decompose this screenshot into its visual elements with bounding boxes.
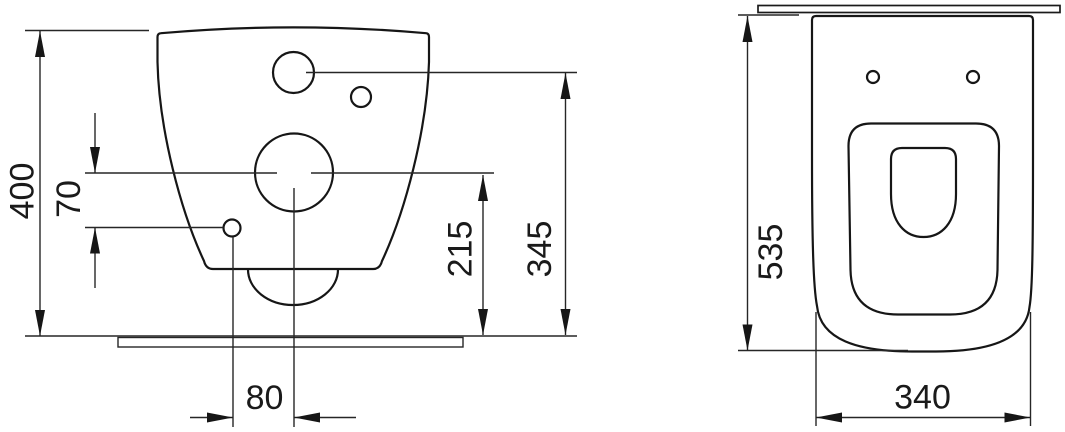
dimension-label-535: 535 — [752, 224, 790, 281]
bowl-rim-outline — [849, 124, 1000, 315]
dimension-label-340: 340 — [894, 379, 951, 417]
arrowhead-up — [743, 16, 753, 42]
arrowhead-down — [90, 147, 100, 173]
dimension-label-345: 345 — [521, 221, 559, 278]
dimension-fixing-hole-spacing: 80 — [190, 379, 356, 423]
toilet-dimension-drawing: 400 70 215 345 — [0, 0, 1065, 432]
arrowhead-down — [743, 325, 753, 351]
bowl-opening-outline — [891, 148, 956, 237]
dimension-outlet-height: 215 — [442, 175, 489, 335]
technical-drawing-page: 400 70 215 345 — [0, 0, 1065, 432]
arrowhead-left — [294, 413, 320, 423]
hinge-hole-left — [867, 71, 879, 83]
arrowhead-left — [816, 413, 842, 423]
arrowhead-up — [35, 31, 45, 57]
dimension-inlet-height: 345 — [521, 73, 571, 335]
rear-body-outline — [158, 27, 430, 269]
arrowhead-up — [561, 73, 571, 99]
arrowhead-right — [207, 413, 233, 423]
arrowhead-up — [90, 228, 100, 254]
rear-view: 400 70 215 345 — [4, 27, 578, 427]
dimension-label-215: 215 — [442, 221, 480, 278]
fixing-hole — [224, 220, 241, 237]
dimension-fixing-hole-offset: 70 — [50, 113, 100, 288]
floor-plate — [118, 338, 463, 348]
dimension-overall-width: 340 — [816, 312, 1031, 426]
arrowhead-down — [35, 310, 45, 336]
dimension-overall-depth: 535 — [738, 15, 908, 351]
arrowhead-down — [478, 309, 488, 335]
arrowhead-right — [1005, 413, 1031, 423]
dimension-label-400: 400 — [4, 163, 42, 220]
side-hole — [351, 87, 371, 107]
top-body-outline — [812, 16, 1033, 352]
wall-line — [758, 6, 1060, 13]
dimension-label-80: 80 — [246, 379, 284, 417]
arrowhead-down — [561, 309, 571, 335]
arrowhead-up — [478, 175, 488, 201]
dimension-label-70: 70 — [50, 180, 88, 218]
top-view: 535 340 — [738, 6, 1060, 427]
trap-outlet-arc — [248, 270, 338, 306]
hinge-hole-right — [967, 71, 979, 83]
